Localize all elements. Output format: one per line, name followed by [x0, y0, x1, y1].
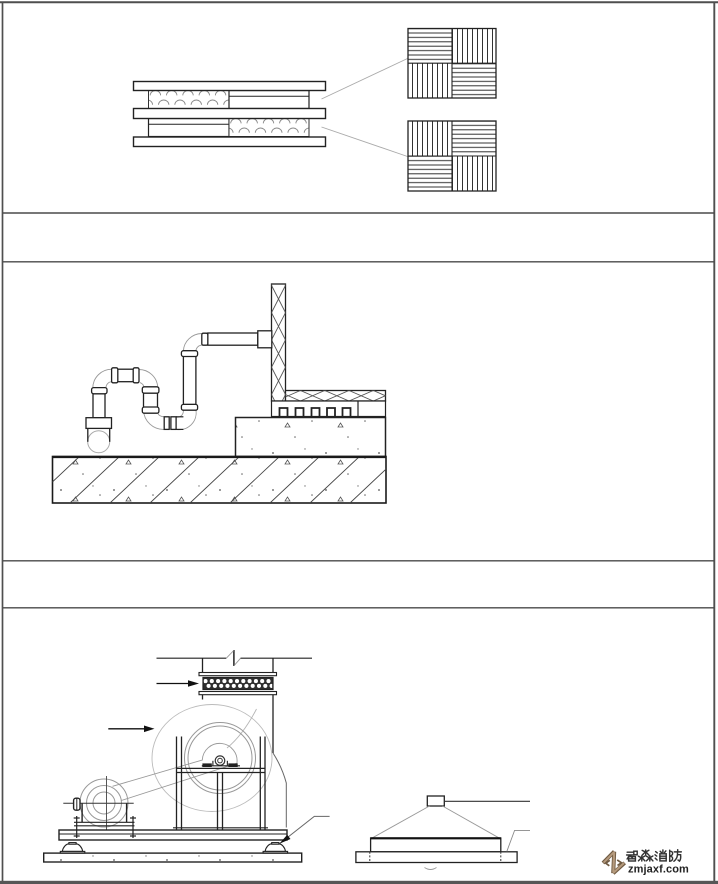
svg-text:zmjaxf.com: zmjaxf.com — [628, 864, 689, 876]
